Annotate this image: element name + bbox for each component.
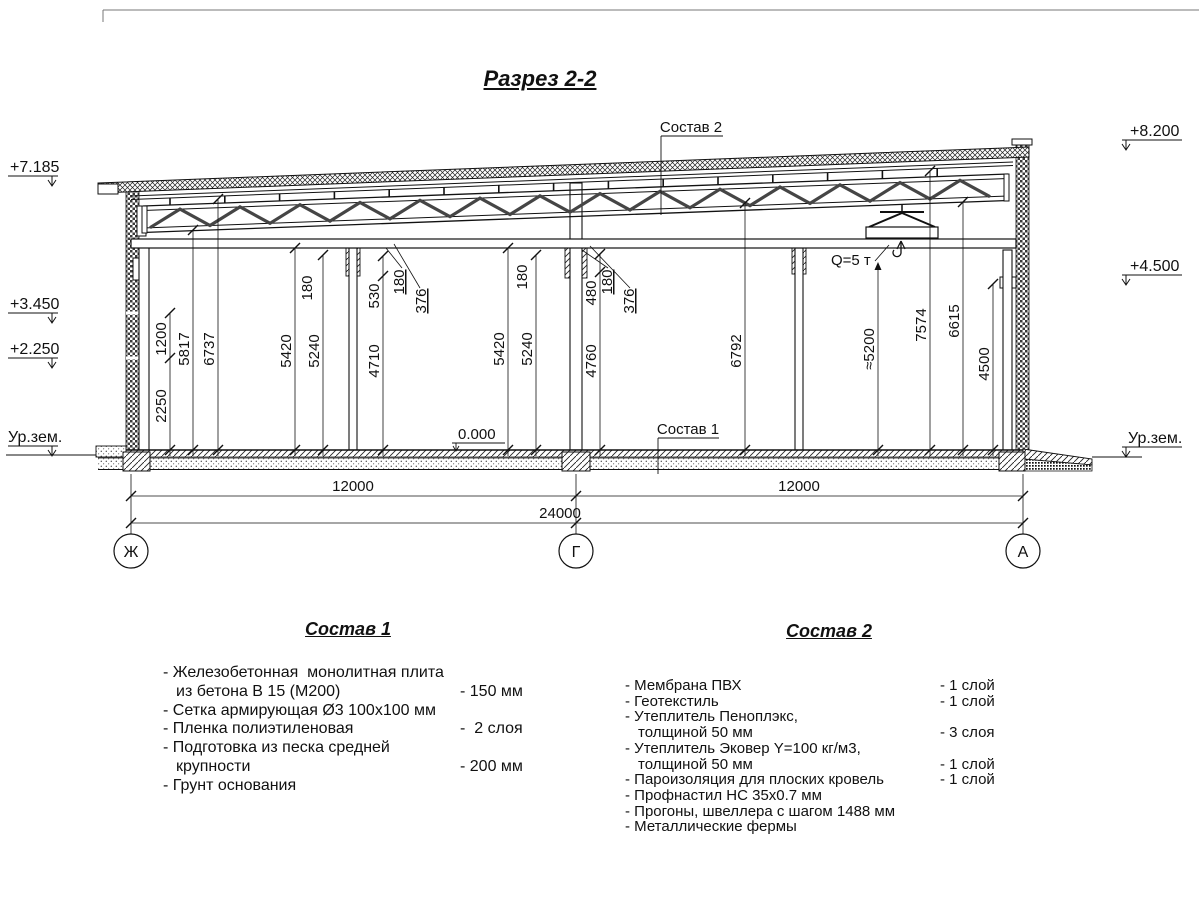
- callout-sostav1-label: Состав 1: [657, 421, 719, 438]
- sheet-frame: [103, 10, 1199, 22]
- list-item: толщиной 50 мм- 3 слоя: [625, 725, 1010, 741]
- dim-376-b: 376: [621, 288, 638, 313]
- leader-lines: [386, 244, 889, 288]
- list-item: из бетона В 15 (М200)- 150 мм: [163, 683, 543, 702]
- dim-4710: 4710: [366, 344, 383, 377]
- dim-12000-right: 12000: [778, 478, 820, 495]
- zero-level-mark: 0.000: [452, 426, 505, 451]
- level-4500: +4.500: [1130, 258, 1179, 275]
- dim-12000-left: 12000: [332, 478, 374, 495]
- level-ground-left: Ур.зем.: [8, 429, 62, 446]
- list-item: - Прогоны, швеллера с шагом 1488 мм: [625, 804, 1010, 820]
- sostav1-list: - Железобетонная монолитная плита из бет…: [163, 664, 543, 796]
- list-item: - Геотекстиль- 1 слой: [625, 694, 1010, 710]
- level-3450: +3.450: [10, 296, 59, 313]
- dim-5240-a: 5240: [306, 334, 323, 367]
- level-marks-left: [8, 176, 58, 456]
- drawing-sheet: Разрез 2-2: [0, 0, 1200, 900]
- sostav2-list: - Мембрана ПВХ- 1 слой - Геотекстиль- 1 …: [625, 678, 1010, 835]
- level-8200: +8.200: [1130, 123, 1179, 140]
- list-item: - Профнастил НС 35х0.7 мм: [625, 788, 1010, 804]
- level-7185: +7.185: [10, 159, 59, 176]
- dim-530: 530: [366, 283, 383, 308]
- dim-6792: 6792: [728, 334, 745, 367]
- sostav1-heading: Состав 1: [238, 619, 458, 640]
- dim-180-a: 180: [299, 275, 316, 300]
- dim-4760: 4760: [583, 344, 600, 377]
- level-ground-right: Ур.зем.: [1128, 430, 1182, 447]
- axis-letter-a: А: [1018, 544, 1029, 561]
- crane-runway-beam: [131, 239, 1016, 248]
- dim-1200: 1200: [153, 322, 170, 355]
- dim-7574: 7574: [913, 308, 930, 341]
- roof: [98, 147, 1029, 200]
- list-item: - Грунт основания: [163, 777, 543, 796]
- dim-5200: ≈5200: [861, 328, 878, 370]
- dim-2250: 2250: [153, 389, 170, 422]
- crane-hoist: [866, 204, 938, 257]
- list-item: толщиной 50 мм- 1 слой: [625, 757, 1010, 773]
- list-item: - Железобетонная монолитная плита: [163, 664, 543, 683]
- axis-letter-g: Г: [572, 544, 581, 561]
- axis-letter-zh: Ж: [124, 544, 139, 561]
- crane-capacity-label: Q=5 т: [831, 252, 871, 269]
- level-marks-right: [1122, 140, 1182, 457]
- dim-5817: 5817: [176, 332, 193, 365]
- list-item: - Металлические фермы: [625, 819, 1010, 835]
- dim-180-d: 180: [599, 269, 616, 294]
- dim-6737: 6737: [201, 332, 218, 365]
- callout-sostav2-label: Состав 2: [660, 119, 722, 136]
- dim-4500: 4500: [976, 347, 993, 380]
- dim-180-b: 180: [391, 269, 408, 294]
- left-apron: [96, 446, 126, 457]
- horizontal-dimension-rows: [131, 474, 1023, 534]
- list-item: - Утеплитель Пеноплэкс,: [625, 709, 1010, 725]
- list-item: - Утеплитель Эковер Y=100 кг/м3,: [625, 741, 1010, 757]
- dim-376-a: 376: [413, 288, 430, 313]
- dim-24000: 24000: [539, 505, 581, 522]
- list-item: - Подготовка из песка средней: [163, 739, 543, 758]
- level-2250: +2.250: [10, 341, 59, 358]
- drawing-title: Разрез 2-2: [440, 66, 640, 92]
- list-item: - Мембрана ПВХ- 1 слой: [625, 678, 1010, 694]
- sostav2-heading: Состав 2: [719, 621, 939, 642]
- list-item: - Пароизоляция для плоских кровель- 1 сл…: [625, 772, 1010, 788]
- dim-480: 480: [583, 280, 600, 305]
- dim-5420-b: 5420: [491, 332, 508, 365]
- zero-level-label: 0.000: [458, 426, 496, 443]
- dim-180-c: 180: [514, 264, 531, 289]
- dim-arrow-up: [875, 262, 882, 270]
- list-item: - Пленка полиэтиленовая- 2 слоя: [163, 720, 543, 739]
- roof-overhang-cap: [98, 184, 118, 194]
- dim-5420-a: 5420: [278, 334, 295, 367]
- list-item: крупности- 200 мм: [163, 758, 543, 777]
- dim-5240-b: 5240: [519, 332, 536, 365]
- list-item: - Сетка армирующая Ø3 100х100 мм: [163, 702, 543, 721]
- floor-slab: [6, 446, 1142, 471]
- dim-6615: 6615: [946, 304, 963, 337]
